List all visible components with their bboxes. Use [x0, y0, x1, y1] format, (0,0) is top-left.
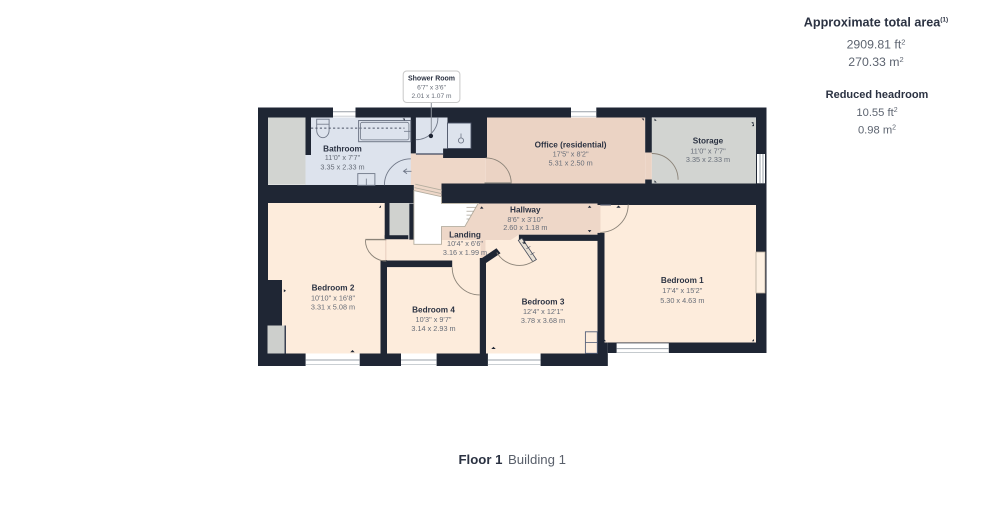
svg-text:10'10" x 16'8": 10'10" x 16'8": [311, 294, 355, 303]
svg-text:3.35 x 2.33 m: 3.35 x 2.33 m: [686, 155, 730, 164]
svg-text:2909.81 ft2: 2909.81 ft2: [847, 37, 906, 51]
svg-text:17'5" x 8'2": 17'5" x 8'2": [553, 150, 589, 159]
svg-text:11'0" x 7'7": 11'0" x 7'7": [325, 153, 361, 162]
svg-text:2.60 x 1.18 m: 2.60 x 1.18 m: [503, 223, 547, 232]
svg-text:2.01 x 1.07 m: 2.01 x 1.07 m: [412, 93, 452, 100]
svg-text:Bedroom 3: Bedroom 3: [522, 297, 565, 306]
svg-text:Office (residential): Office (residential): [535, 140, 607, 149]
svg-text:270.33 m2: 270.33 m2: [848, 55, 903, 69]
svg-text:Reduced headroom: Reduced headroom: [826, 89, 929, 101]
svg-text:Bedroom 4: Bedroom 4: [412, 305, 455, 314]
svg-text:Hallway: Hallway: [510, 205, 541, 214]
svg-text:Bedroom 1: Bedroom 1: [661, 276, 704, 285]
svg-text:3.14 x 2.93 m: 3.14 x 2.93 m: [411, 324, 455, 333]
svg-text:Landing: Landing: [449, 230, 481, 239]
svg-text:10'4" x 6'6": 10'4" x 6'6": [447, 239, 483, 248]
svg-text:3.35 x 2.33 m: 3.35 x 2.33 m: [320, 163, 364, 172]
svg-text:Bathroom: Bathroom: [323, 144, 362, 153]
svg-text:3.31 x 5.08 m: 3.31 x 5.08 m: [311, 303, 355, 312]
svg-text:0.98 m2: 0.98 m2: [858, 124, 896, 136]
svg-text:3.16 x 1.99 m: 3.16 x 1.99 m: [443, 248, 487, 257]
svg-text:Floor 1: Floor 1: [459, 452, 503, 467]
svg-text:17'4" x 15'2": 17'4" x 15'2": [662, 286, 702, 295]
svg-text:Bedroom 2: Bedroom 2: [312, 284, 355, 293]
svg-text:5.31 x 2.50 m: 5.31 x 2.50 m: [548, 158, 592, 167]
svg-text:3.78 x 3.68 m: 3.78 x 3.68 m: [521, 316, 565, 325]
svg-text:12'4" x 12'1": 12'4" x 12'1": [523, 307, 563, 316]
svg-text:10'3" x 9'7": 10'3" x 9'7": [416, 315, 452, 324]
svg-text:Storage: Storage: [693, 137, 724, 146]
svg-text:Shower Room: Shower Room: [408, 76, 455, 83]
svg-text:6'7" x 3'6": 6'7" x 3'6": [417, 85, 446, 92]
svg-text:Building 1: Building 1: [508, 452, 566, 467]
svg-text:Approximate total area(1): Approximate total area(1): [804, 16, 948, 30]
svg-text:10.55 ft2: 10.55 ft2: [856, 107, 897, 119]
svg-text:5.30 x 4.63 m: 5.30 x 4.63 m: [660, 296, 704, 305]
